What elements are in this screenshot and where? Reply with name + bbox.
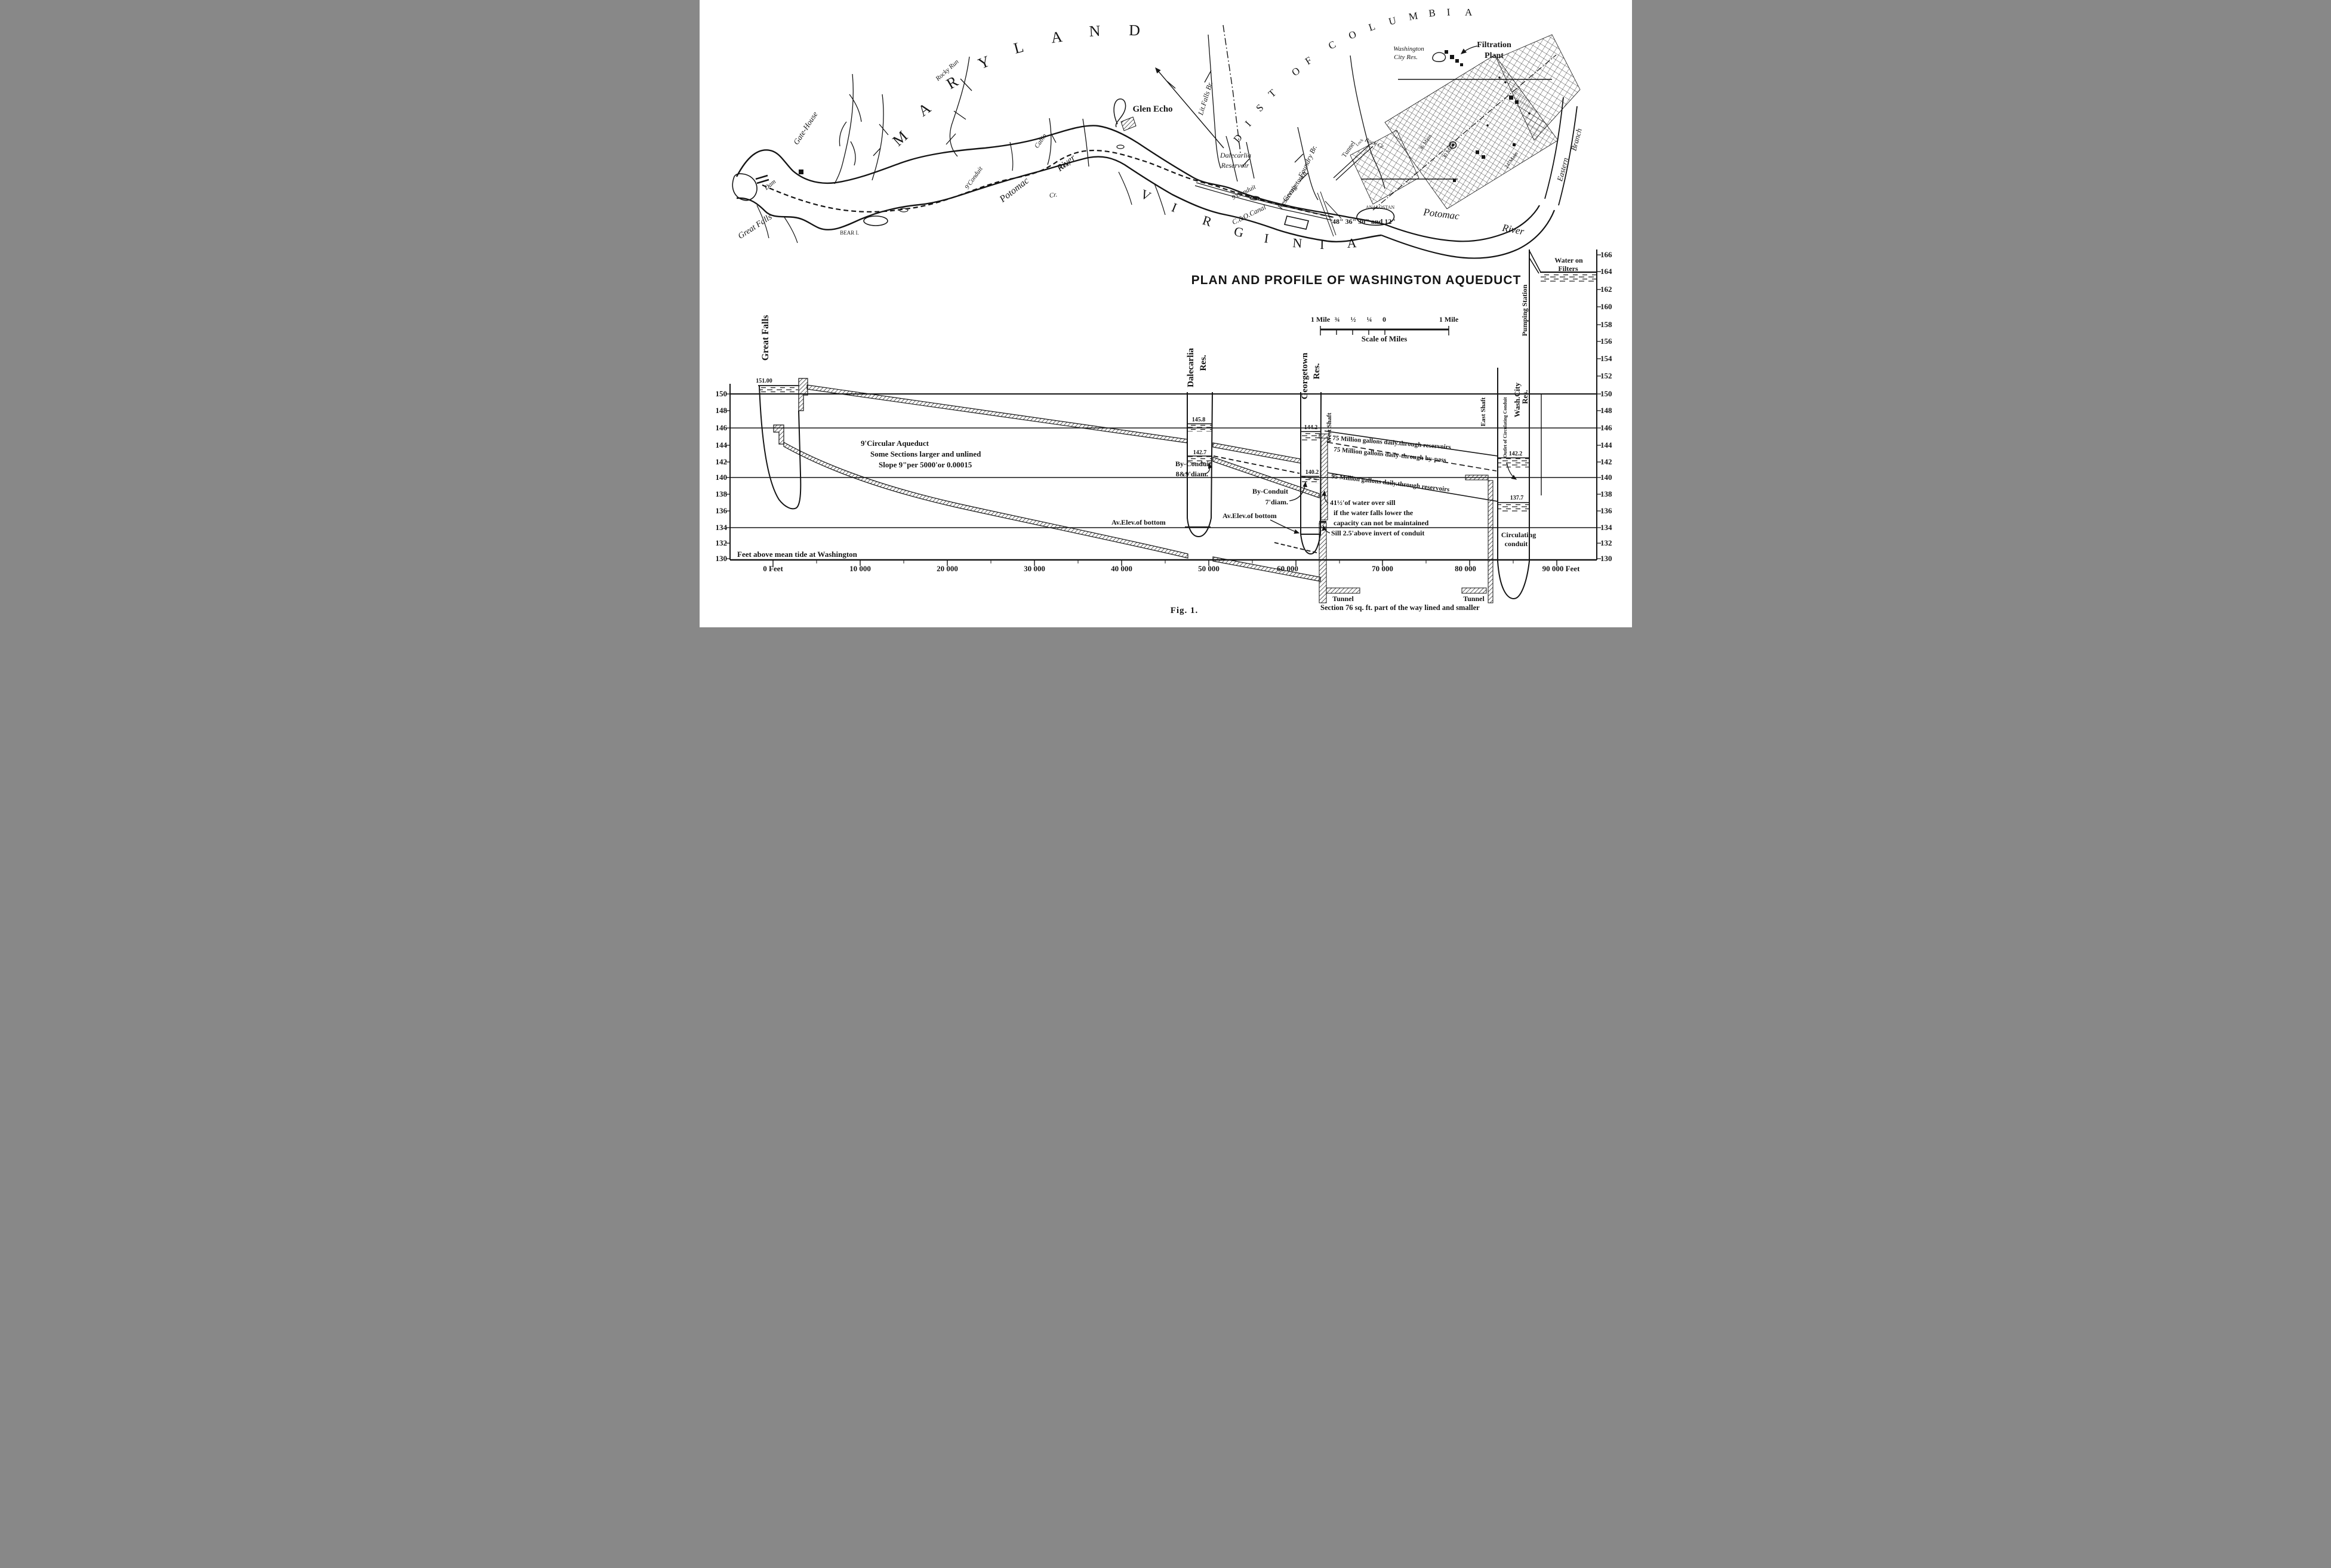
- left-axis: 132: [715, 538, 727, 547]
- tunnel-label-1: Tunnel: [1332, 594, 1354, 603]
- x-axis: 60 000: [1277, 564, 1298, 573]
- virginia-letter: I: [1319, 237, 1324, 252]
- map-label-branch: Branch: [1569, 127, 1583, 152]
- right-axis: 140: [1600, 473, 1612, 482]
- maryland-letter: M: [889, 127, 911, 149]
- tunnel-2-bar: [1462, 588, 1486, 593]
- maryland-letter: D: [1128, 21, 1140, 39]
- map-label-city-res: City Res.: [1394, 54, 1418, 61]
- great-falls-water: [760, 386, 798, 393]
- dc-letter: D: [1231, 132, 1244, 145]
- virginia-letter: V: [1138, 186, 1153, 204]
- potomac-upper-bank: [737, 125, 1385, 224]
- map-label-river-west: River: [1054, 153, 1077, 174]
- fig-caption: Fig. 1.: [1170, 606, 1198, 615]
- by-conduit-7-2: 7'diam.: [1265, 498, 1288, 506]
- figure-canvas: MARYLANDVIRGINIADISTOFCOLUMBIAGreat Fall…: [700, 0, 1632, 627]
- map-label-mains: 48" 36" 30" and 12": [1332, 217, 1396, 226]
- av-elev-dalecarlia: Av.Elev.of bottom: [1111, 518, 1166, 526]
- map-label-analostan: ANALOSTAN: [1365, 205, 1394, 210]
- left-axis: 142: [715, 457, 727, 466]
- right-axis: 158: [1600, 320, 1612, 329]
- dc-letter: O: [1289, 65, 1302, 79]
- station-georgetown: Georgetown: [1300, 352, 1310, 399]
- elev-washcity-low: 137.7: [1510, 495, 1523, 501]
- map-label-lock: Lock: [1354, 137, 1364, 147]
- sill-note-1: 41½'of water over sill: [1330, 498, 1396, 507]
- gate-house-symbol: [799, 170, 803, 174]
- grade-line-3-label: 95 Million gallons daily.through reservo…: [1331, 473, 1450, 494]
- bear-island: [864, 216, 888, 226]
- dc-letter: F: [1303, 54, 1314, 67]
- right-axis: 144: [1600, 440, 1612, 449]
- georgetown-lower-shaft: [1319, 523, 1326, 603]
- aqueduct-note-3: Slope 9"per 5000'or 0.00015: [879, 460, 972, 469]
- map-label-eastern: Eastern: [1554, 156, 1569, 183]
- great-falls-well: [759, 386, 800, 509]
- right-axis: 138: [1600, 489, 1612, 498]
- wash-city-water-high: [1498, 458, 1529, 467]
- station-great-falls: Great Falls: [760, 315, 771, 361]
- map-label-dalecarlia-res: Reservoir: [1220, 161, 1249, 170]
- right-axis: 152: [1600, 371, 1612, 380]
- circulating-conduit-2: conduit: [1504, 540, 1528, 548]
- right-axis: 166: [1600, 250, 1612, 259]
- scale-caption: Scale of Miles: [1361, 334, 1407, 343]
- left-axis: 146: [715, 423, 727, 432]
- scale-label: ¾: [1334, 315, 1340, 324]
- right-axis: 160: [1600, 302, 1612, 311]
- station-dalecarlia-res: Res.: [1199, 355, 1208, 371]
- left-axis: 136: [715, 506, 727, 515]
- right-axis: 130: [1600, 554, 1612, 563]
- dc-letter: T: [1265, 87, 1278, 99]
- stream-md: [872, 94, 888, 180]
- left-axis: 144: [715, 440, 727, 449]
- station-pumping: Pumping Station: [1520, 284, 1529, 336]
- conduit-band-upper-east: [1213, 443, 1301, 463]
- by-conduit-7-dashed: [1274, 543, 1319, 553]
- filtration-plant-arrow: [1461, 46, 1477, 54]
- map-label-glen-echo: Glen Echo: [1132, 104, 1172, 114]
- virginia-letter: I: [1263, 230, 1270, 246]
- maryland-letter: A: [914, 99, 934, 120]
- dc-letter: M: [1408, 10, 1418, 23]
- right-axis: 136: [1600, 506, 1612, 515]
- left-axis: 130: [715, 554, 727, 563]
- left-axis: 148: [715, 406, 727, 415]
- eastern-branch-east-bank: [1559, 106, 1577, 205]
- pumping-station-chute: [1529, 251, 1541, 273]
- x-axis: 10 000: [849, 564, 871, 573]
- map-label-filtration: Filtration: [1477, 41, 1511, 50]
- right-axis: 164: [1600, 267, 1612, 276]
- glen-echo-flag: [1121, 117, 1136, 131]
- dc-letter: A: [1465, 7, 1473, 18]
- elev-washcity-high: 142.2: [1508, 451, 1522, 457]
- dc-letter: C: [1326, 38, 1338, 51]
- map-label-potomac-west: Potomac: [997, 175, 1030, 205]
- right-axis: 132: [1600, 538, 1612, 547]
- scale-label: 1 Mile: [1310, 315, 1330, 324]
- by-conduit-89-2: 8&9'diam.: [1175, 470, 1208, 478]
- x-axis: 40 000: [1111, 564, 1132, 573]
- maryland-letter: L: [1012, 38, 1026, 57]
- x-axis: 20 000: [937, 564, 958, 573]
- map-layer: [732, 25, 1580, 258]
- dc-letter: U: [1387, 14, 1397, 27]
- tunnel-label-2: Tunnel: [1463, 594, 1485, 603]
- sill-note-4: Sill 2.5'above invert of conduit: [1331, 529, 1424, 537]
- scale-label: ¼: [1366, 315, 1372, 324]
- stream-gatehouse-creek: [835, 74, 861, 184]
- left-axis: 150: [715, 389, 727, 398]
- map-label-plant: Plant: [1485, 51, 1504, 60]
- map-label-potomac-east: Potomac: [1422, 206, 1460, 221]
- x-axis: 50 000: [1198, 564, 1220, 573]
- east-shaft-column: [1488, 480, 1493, 603]
- virginia-letter: A: [1346, 235, 1356, 251]
- circulating-conduit-1: Circulating: [1501, 531, 1535, 539]
- filters-water: [1541, 273, 1596, 282]
- washington-city-res-map: [1432, 53, 1445, 61]
- scale-label: ½: [1350, 315, 1356, 324]
- dalecarlia-water-high: [1188, 424, 1212, 432]
- profile-title: PLAN AND PROFILE OF WASHINGTON AQUEDUCT: [1191, 273, 1521, 287]
- great-falls-lower-gate: [774, 425, 784, 444]
- y-axis-note: Feet above mean tide at Washington: [737, 550, 858, 559]
- dc-letter: O: [1347, 28, 1358, 41]
- small-island: [1117, 145, 1124, 149]
- map-label-washington: Washington: [1393, 45, 1424, 53]
- georgetown-water-high: [1301, 432, 1320, 440]
- x-axis: 90 000 Feet: [1542, 564, 1579, 573]
- station-georgetown-res: Res.: [1312, 363, 1322, 379]
- sill-note-3: capacity can not be maintained: [1334, 519, 1429, 527]
- by-conduit-7-1: By-Conduit: [1252, 487, 1288, 495]
- right-axis: 156: [1600, 337, 1612, 346]
- east-shaft-bar: [1465, 475, 1488, 480]
- water-on-filters-1: Water on: [1554, 256, 1583, 264]
- av-elev-georgetown: Av.Elev.of bottom: [1223, 512, 1277, 520]
- x-axis: 80 000: [1455, 564, 1476, 573]
- left-axis: 140: [715, 473, 727, 482]
- sill-note-2: if the water falls lower the: [1334, 509, 1414, 517]
- station-outlet: Outlet of Circulating Conduit: [1502, 397, 1508, 458]
- dc-letter: S: [1254, 102, 1265, 114]
- map-label-cabin: Cabin: [1033, 132, 1048, 149]
- left-axis: 134: [715, 523, 727, 532]
- elev-dalecarlia-low: 142.7: [1193, 449, 1206, 456]
- scale-label: 0: [1382, 315, 1386, 324]
- dc-letter: B: [1428, 7, 1436, 19]
- right-axis: 142: [1600, 457, 1612, 466]
- scale-label: 1 Mile: [1439, 315, 1458, 324]
- maryland-letter: A: [1049, 28, 1063, 47]
- map-label-gate-house: Gate-House: [791, 110, 819, 146]
- station-dalecarlia: Dalecarlia: [1186, 348, 1196, 387]
- dc-letter: L: [1367, 21, 1377, 33]
- right-axis: 150: [1600, 389, 1612, 398]
- elev-georgetown-low: 140.2: [1305, 469, 1319, 476]
- great-falls-lake: [732, 174, 757, 201]
- station-wash-city-res: Res.: [1520, 390, 1529, 403]
- maryland-letter: Y: [975, 53, 992, 73]
- virginia-letter: I: [1169, 199, 1179, 215]
- right-axis: 146: [1600, 423, 1612, 432]
- aqueduct-note-2: Some Sections larger and unlined: [870, 449, 981, 458]
- water-on-filters-2: Filters: [1558, 264, 1578, 273]
- x-axis: 0 Feet: [763, 564, 783, 573]
- left-axis: 138: [715, 489, 727, 498]
- elev-georgetown-high: 144.2: [1304, 424, 1317, 431]
- great-falls-upper-gate: [799, 378, 808, 411]
- right-axis: 162: [1600, 285, 1612, 294]
- by-conduit-89-1: By-Conduit: [1175, 460, 1211, 468]
- dc-letter: I: [1446, 7, 1451, 18]
- map-label-dam: Dam: [762, 178, 777, 192]
- right-axis: 148: [1600, 406, 1612, 415]
- potomac-wide-lower: [1381, 210, 1554, 258]
- virginia-letter: N: [1292, 235, 1302, 251]
- wash-city-water-low: [1498, 503, 1529, 512]
- conduit-band-lower-west: [784, 442, 1188, 558]
- map-label-cr: Cr.: [1048, 191, 1057, 199]
- x-axis: 30 000: [1024, 564, 1045, 573]
- virginia-letter: R: [1200, 212, 1214, 229]
- right-axis: 134: [1600, 523, 1612, 532]
- dc-letter: I: [1242, 119, 1253, 129]
- right-axis: 154: [1600, 354, 1612, 363]
- tunnel-1-bar: [1326, 588, 1360, 593]
- plan-and-profile-figure: MARYLANDVIRGINIADISTOFCOLUMBIAGreat Fall…: [700, 0, 1632, 627]
- map-label-dalecarlia: Dalecarlia: [1220, 151, 1251, 159]
- georgetown-reservoir-outline: [1285, 216, 1308, 229]
- elev-dalecarlia-high: 145.8: [1191, 417, 1205, 423]
- x-axis: 70 000: [1372, 564, 1393, 573]
- section-note: Section 76 sq. ft. part of the way lined…: [1320, 603, 1480, 612]
- elev-great-falls: 151.00: [756, 378, 772, 384]
- aqueduct-note-1: 9'Circular Aqueduct: [861, 439, 929, 448]
- map-label-lit-falls-br: Lit.Falls Br.: [1196, 81, 1214, 116]
- north-arrow-cross: [1167, 81, 1175, 88]
- west-shaft-column: [1321, 438, 1328, 520]
- map-label-co-canal: C.&O.Canal: [1230, 202, 1267, 226]
- map-label-bear-island: BEAR I.: [840, 230, 859, 236]
- station-east-shaft: East Shaft: [1480, 397, 1487, 426]
- maryland-letter: N: [1088, 22, 1100, 40]
- av-elev-georgetown-arrow: [1270, 520, 1299, 533]
